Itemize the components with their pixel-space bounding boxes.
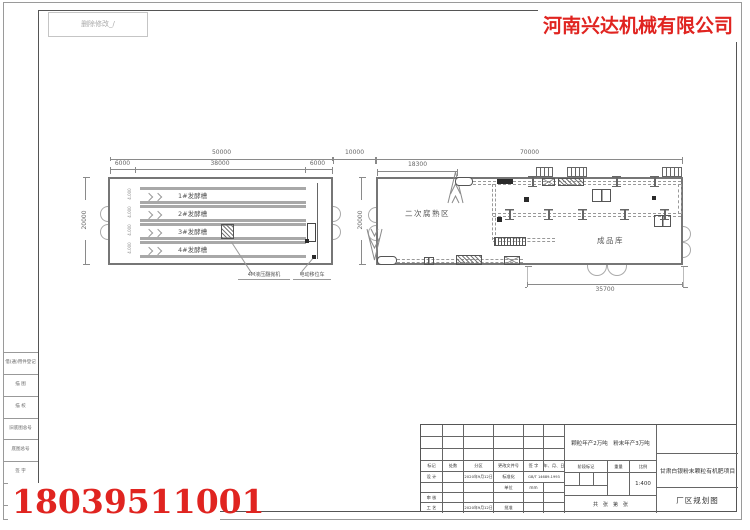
strip-row: 签 字 bbox=[3, 462, 38, 484]
conveyor-line bbox=[492, 184, 496, 240]
dim-line-10000 bbox=[333, 159, 376, 160]
vent-symbol bbox=[536, 167, 553, 177]
dim-38000: 38000 bbox=[135, 161, 305, 167]
tb-approve-label: 批准 bbox=[493, 502, 523, 513]
equipment-marker bbox=[305, 239, 309, 243]
title-block: 标记 处数 分区 更改文件号 签 字 年、月、日 设 计 2020年9月12日 … bbox=[420, 424, 737, 512]
support-symbol bbox=[612, 176, 621, 187]
dim-tick bbox=[135, 166, 136, 173]
tb-unit-label: 单位 bbox=[493, 482, 523, 492]
equipment-marker bbox=[497, 217, 502, 222]
flow-arrow-icon bbox=[154, 247, 162, 255]
flow-arrow-icon bbox=[145, 229, 153, 237]
cart-callout: 电动移位车 bbox=[293, 271, 331, 280]
flow-arrow-icon bbox=[154, 193, 162, 201]
tb-empty bbox=[543, 482, 564, 492]
tb-design-date: 2020年9月12日 bbox=[463, 471, 493, 482]
support-symbol bbox=[505, 209, 514, 220]
dim-tick bbox=[305, 166, 306, 173]
machine-footprint bbox=[592, 189, 611, 202]
strip-row: 旧底图总号 bbox=[3, 419, 38, 441]
machine-symbol bbox=[456, 255, 482, 265]
strip-row: 描 校 bbox=[3, 397, 38, 419]
tb-drawing-title: 厂区规划图 bbox=[656, 487, 738, 513]
tb-empty bbox=[463, 492, 493, 502]
tb-process-date: 2020年9月12日 bbox=[463, 502, 493, 513]
support-symbol bbox=[544, 209, 553, 220]
conveyor-line bbox=[678, 184, 682, 214]
dim-line-18300 bbox=[377, 171, 458, 172]
dim-pitch: 4.000 bbox=[128, 240, 132, 256]
warehouse-zone-label: 成品库 bbox=[597, 235, 624, 246]
turner-callout: 4M液压翻抛机 bbox=[238, 271, 290, 280]
machine-symbol bbox=[542, 178, 555, 186]
machine-symbol bbox=[494, 237, 526, 246]
tb-empty bbox=[523, 492, 543, 502]
dim-70000: 70000 bbox=[376, 150, 683, 156]
tb-empty bbox=[442, 502, 463, 513]
strip-row: 借(通)用件登记 bbox=[3, 353, 38, 375]
support-symbol bbox=[650, 176, 659, 187]
tb-empty bbox=[656, 425, 738, 453]
tb-empty bbox=[463, 482, 493, 492]
trough-label: 1#发酵槽 bbox=[178, 193, 207, 200]
tb-header: 标记 bbox=[421, 460, 442, 471]
fermentation-trough-4: 4#发酵槽 bbox=[140, 241, 306, 258]
dim-20000-left: 20000 bbox=[82, 200, 88, 240]
tb-header: 处数 bbox=[442, 460, 463, 471]
tb-header: 更改文件号 bbox=[493, 460, 523, 471]
flow-arrow-icon bbox=[154, 211, 162, 219]
hopper-symbol bbox=[377, 256, 397, 265]
tb-header: 分区 bbox=[463, 460, 493, 471]
strip-row: 底图总号 bbox=[3, 440, 38, 462]
tb-empty bbox=[442, 471, 463, 482]
drawing-sheet: 借(通)用件登记 描 图 描 校 旧底图总号 底图总号 签 字 日 期 删除修改… bbox=[0, 0, 750, 530]
tb-empty bbox=[442, 482, 463, 492]
fermentation-trough-2: 2#发酵槽 bbox=[140, 205, 306, 222]
dim-line-70000 bbox=[376, 159, 683, 160]
dim-20000-right: 20000 bbox=[358, 200, 364, 240]
dim-35700: 35700 bbox=[527, 287, 683, 293]
flow-arrow-icon bbox=[145, 193, 153, 201]
tb-standard-value: GB/T 14689-1993 bbox=[523, 471, 564, 482]
fermentation-trough-1: 1#发酵槽 bbox=[140, 187, 306, 204]
company-name-overlay: 河南兴达机械有限公司 bbox=[538, 10, 738, 42]
machine-symbol bbox=[424, 257, 434, 265]
conveyor-line bbox=[493, 213, 681, 217]
phone-number-overlay: 18039511001 bbox=[8, 483, 220, 523]
tb-standard-label: 标准化 bbox=[493, 471, 523, 482]
machine-symbol bbox=[558, 178, 584, 186]
tb-empty bbox=[543, 492, 564, 502]
tb-stage-boxes bbox=[564, 472, 607, 495]
vent-symbol bbox=[567, 167, 587, 177]
equipment-marker bbox=[652, 196, 656, 200]
flow-arrow-icon bbox=[145, 247, 153, 255]
tb-production-note: 颗粒年产2万吨 粉末年产3万吨 bbox=[564, 425, 656, 460]
support-symbol bbox=[578, 209, 587, 220]
tb-scale-value: 1:400 bbox=[629, 472, 656, 495]
tb-empty bbox=[421, 482, 442, 492]
support-symbol bbox=[620, 209, 629, 220]
tb-project-name: 甘肃白银粉末颗粒有机肥项目 bbox=[656, 453, 738, 487]
dim-ext-line bbox=[683, 266, 684, 288]
tb-check-label: 审 核 bbox=[421, 492, 442, 502]
tb-empty bbox=[523, 502, 543, 513]
dim-line-35700 bbox=[527, 284, 683, 285]
cart-track-line bbox=[317, 183, 318, 259]
dim-50000: 50000 bbox=[110, 150, 333, 156]
tb-empty bbox=[493, 492, 523, 502]
dim-6000-right: 6000 bbox=[301, 161, 334, 167]
tb-weight-label: 重量 bbox=[607, 460, 629, 472]
machine-symbol bbox=[504, 256, 520, 265]
tb-scale-label: 比例 bbox=[629, 460, 656, 472]
stacker-tower-icon bbox=[447, 171, 464, 204]
dim-10000: 10000 bbox=[333, 150, 376, 156]
curing-building-wall bbox=[376, 177, 683, 265]
dim-18300: 18300 bbox=[377, 162, 458, 168]
dim-pitch: 4.000 bbox=[128, 186, 132, 202]
dim-pitch: 4.000 bbox=[128, 222, 132, 238]
support-symbol bbox=[528, 176, 537, 187]
compost-turner-symbol bbox=[221, 224, 234, 239]
equipment-marker bbox=[524, 197, 529, 202]
machine-symbol bbox=[497, 179, 513, 184]
tb-header: 年、月、日 bbox=[543, 460, 564, 471]
dim-pitch: 4.000 bbox=[128, 204, 132, 220]
vent-symbol bbox=[662, 167, 682, 177]
tb-stage-mark-label: 阶段标记 bbox=[564, 460, 607, 472]
curing-zone-label: 二次腐熟区 bbox=[405, 208, 450, 219]
tb-design-label: 设 计 bbox=[421, 471, 442, 482]
tb-empty bbox=[442, 492, 463, 502]
tb-process-label: 工 艺 bbox=[421, 502, 442, 513]
trough-label: 4#发酵槽 bbox=[178, 247, 207, 254]
tb-empty bbox=[543, 502, 564, 513]
trough-label: 2#发酵槽 bbox=[178, 211, 207, 218]
tb-sheet-note: 共 张 第 张 bbox=[564, 495, 656, 513]
revision-stamp: 删除修改_/ bbox=[48, 12, 148, 37]
dim-line-segments bbox=[110, 169, 333, 170]
support-symbol bbox=[660, 209, 669, 220]
revision-grid bbox=[421, 425, 564, 460]
tb-header: 签 字 bbox=[523, 460, 543, 471]
trough-label: 3#发酵槽 bbox=[178, 229, 207, 236]
flow-arrow-icon bbox=[154, 229, 162, 237]
flow-arrow-icon bbox=[145, 211, 153, 219]
strip-row: 描 图 bbox=[3, 375, 38, 397]
tb-unit-value: mm bbox=[523, 482, 543, 492]
hopper-symbol bbox=[455, 177, 473, 186]
tb-weight-value bbox=[607, 472, 629, 495]
